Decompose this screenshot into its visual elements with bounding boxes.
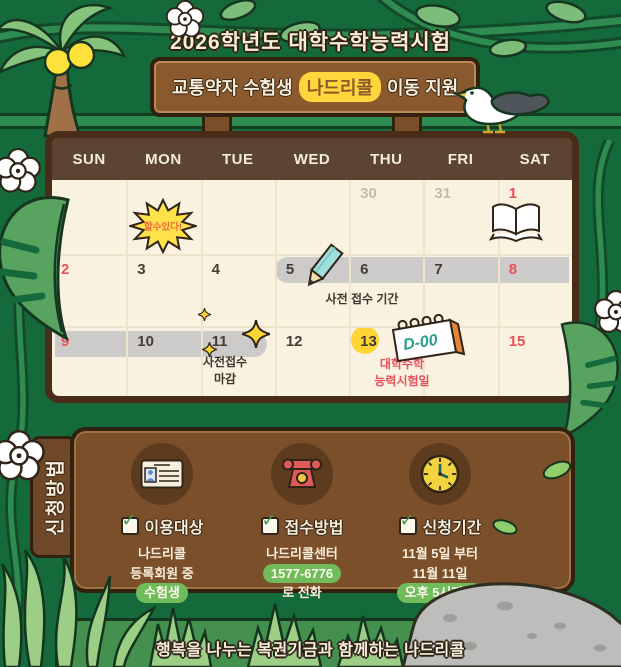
flower [165, 0, 205, 40]
sparkle-icon [198, 308, 211, 321]
leaf [540, 460, 574, 480]
calendar-cell [201, 180, 275, 254]
checkbox-icon [399, 517, 417, 535]
date-number: 31 [425, 180, 497, 202]
date-number: 8 [500, 256, 572, 278]
sparkle-icon [202, 342, 217, 357]
cheer-text: 할수있다! [129, 219, 197, 233]
calendar-cell: 31 [423, 180, 497, 254]
column-title: 이용대상 [145, 514, 204, 538]
icon-circle [271, 443, 333, 505]
monstera-leaf [0, 192, 78, 342]
date-number: 7 [425, 256, 497, 278]
date-number [203, 180, 275, 185]
day-header-tue: TUE [201, 151, 275, 168]
open-book-icon [488, 200, 545, 244]
desk-calendar-icon: D-00 [388, 314, 466, 364]
day-header-mon: MON [126, 151, 200, 168]
leaf [490, 518, 520, 536]
column-title-row: 이용대상 [87, 514, 237, 538]
deadline-line2: 마감 [165, 371, 285, 388]
date-number [52, 180, 126, 185]
column-title: 접수방법 [285, 514, 344, 538]
cheer-starburst: 할수있다! [129, 198, 197, 254]
clock-icon [419, 453, 461, 495]
calendar-cell: 30 [349, 180, 423, 254]
pre-registration-label: 사전 접수 기간 [282, 290, 442, 307]
sign-board: 교통약자 수험생 나드리콜 이동 지원 [150, 57, 480, 117]
date-number [277, 180, 349, 185]
flower [593, 290, 621, 336]
date-number: 4 [203, 256, 275, 278]
calendar-cell: 8 [498, 256, 572, 326]
flower [0, 148, 42, 196]
date-number: 1 [500, 180, 572, 202]
day-header-sat: SAT [498, 151, 572, 168]
checkbox-icon [121, 517, 139, 535]
deadline-line1: 사전접수 [165, 354, 285, 371]
date-number: 6 [351, 256, 423, 278]
deadline-label: 사전접수 마감 [165, 354, 285, 389]
calendar-body: 30 31 1 2 3 4 5 6 7 8 9 10 11 12 13 15 [52, 180, 572, 396]
day-header-sun: SUN [52, 151, 126, 168]
date-number: 12 [277, 328, 349, 350]
pencil-icon [300, 242, 344, 294]
calendar: SUN MON TUE WED THU FRI SAT 30 31 1 [45, 131, 579, 403]
date-number: 3 [128, 256, 200, 278]
date-number: 30 [351, 180, 423, 202]
day-header-thu: THU [349, 151, 423, 168]
day-header-fri: FRI [423, 151, 497, 168]
icon-circle [409, 443, 471, 505]
flower [0, 430, 46, 484]
seagull [452, 70, 557, 136]
date-number [128, 180, 200, 185]
poster: 2026학년도 대학수학능력시험 교통약자 수험생 나드리콜 이동 지원 [0, 0, 621, 667]
column-title: 신청기간 [423, 514, 482, 538]
date-number: 10 [128, 328, 200, 350]
sign-text-post: 이동 지원 [387, 74, 458, 100]
exam-line2: 능력시험일 [332, 373, 472, 390]
page-title: 2026학년도 대학수학능력시험 [0, 26, 621, 56]
phone-icon [281, 457, 323, 491]
footer-slogan: 행복을 나누는 복권기금과 함께하는 나드리콜 [0, 636, 621, 660]
sign-highlight: 나드리콜 [299, 72, 381, 102]
checkbox-icon [261, 517, 279, 535]
column-title-row: 접수방법 [227, 514, 377, 538]
calendar-cell: 4 [201, 256, 275, 326]
calendar-cell: 3 [126, 256, 200, 326]
calendar-day-header-row: SUN MON TUE WED THU FRI SAT [52, 138, 572, 180]
day-header-wed: WED [275, 151, 349, 168]
palm-tree [0, 0, 128, 140]
calendar-week-row: 9 10 11 12 13 15 [52, 326, 572, 396]
monstera-leaf [548, 318, 621, 440]
sign-text-pre: 교통약자 수험생 [172, 74, 293, 100]
icon-circle [131, 443, 193, 505]
id-card-icon [140, 459, 184, 489]
sparkle-icon [242, 320, 270, 348]
